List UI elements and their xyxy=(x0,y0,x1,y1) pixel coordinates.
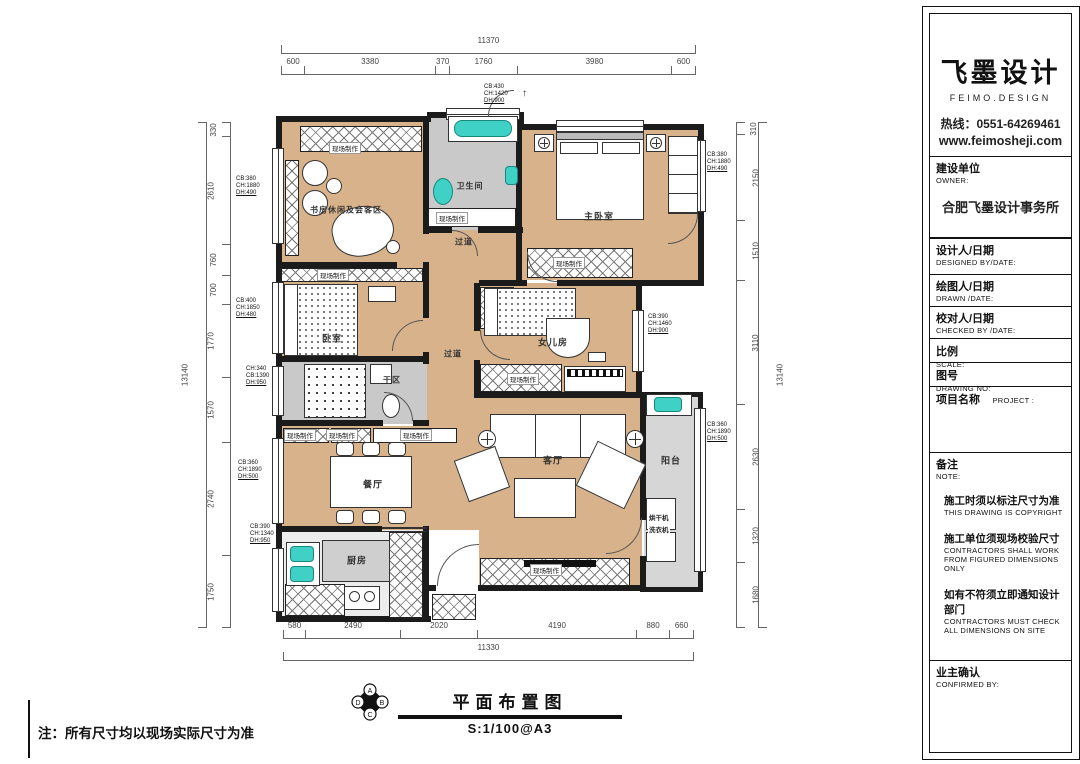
cabinet-label: 现场制作 xyxy=(507,373,539,385)
svg-text:A: A xyxy=(368,688,373,695)
project-label-cn: 项目名称 xyxy=(936,394,980,406)
window-drybath xyxy=(272,366,284,416)
brand-hotline: 热线：0551-64269461 xyxy=(936,115,1065,132)
window-study xyxy=(272,148,284,244)
cabinet-label: 现场制作 xyxy=(400,429,432,441)
scale-section: 比例 SCALE: xyxy=(930,339,1071,363)
window-tag: CB:360CH:1890DH:500 xyxy=(707,422,731,443)
note1-en: THIS DRAWING IS COPYRIGHT xyxy=(944,508,1065,517)
dining-chair xyxy=(336,442,354,456)
cabinet-label: 现场制作 xyxy=(329,142,361,154)
wall-master-left xyxy=(516,124,522,284)
label-master: 主卧室 xyxy=(584,210,614,223)
window-tag: CB:390CH:1460DH:900 xyxy=(648,314,672,335)
brand-website: www.feimosheji.com xyxy=(936,134,1065,148)
dining-chair xyxy=(388,442,406,456)
cabinet-label: 现场制作 xyxy=(326,429,358,441)
window-tag: CB:380CH:1880DH:490 xyxy=(707,152,731,173)
study-chair xyxy=(302,160,328,186)
brand-sub: FEIMO.DESIGN xyxy=(936,93,1065,103)
owner-value: 合肥飞墨设计事务所 xyxy=(936,197,1065,216)
window-balcony xyxy=(694,408,706,572)
designed-label-cn: 设计人/日期 xyxy=(936,242,1065,258)
label-bedroom: 卧室 xyxy=(322,332,342,345)
dim-top-overall: 11370 xyxy=(281,45,696,54)
no-label-cn: 图号 xyxy=(936,370,958,382)
dining-chair xyxy=(336,510,354,524)
sheet-note: 注：所有尺寸均以现场实际尺寸为准 xyxy=(38,722,254,742)
wall-girl-bottom xyxy=(474,392,642,398)
master-closet xyxy=(668,136,698,214)
label-living: 客厅 xyxy=(543,454,563,467)
cabinet-study-left xyxy=(285,160,299,256)
dryer-label: 烘干机 xyxy=(648,512,670,522)
checked-label-en: CHECKED BY /DATE: xyxy=(936,326,1065,335)
window-tag: CB:400CH:1850DH:480 xyxy=(236,298,260,319)
bathtub-basin xyxy=(454,120,512,137)
master-pillow xyxy=(560,142,598,154)
note3-cn: 如有不符须立即通知设计部门 xyxy=(944,587,1065,617)
designed-section: 设计人/日期 DESIGNED BY/DATE: xyxy=(930,239,1071,275)
kitchen-sink xyxy=(290,566,314,582)
cabinet-label: 现场制作 xyxy=(553,257,585,269)
dim-right-overall: 13140 xyxy=(758,122,767,628)
bedroom-pillow xyxy=(284,284,298,356)
label-bath: 卫生间 xyxy=(457,181,484,192)
window-kitchen xyxy=(272,548,284,612)
brand-name: 飞墨设计 xyxy=(936,51,1065,90)
wall-balcony-bottom xyxy=(644,587,703,592)
owner-label-en: OWNER: xyxy=(936,176,1065,185)
wall-girl-right-a xyxy=(636,286,642,310)
balcony-sink xyxy=(654,397,682,412)
note3-en: CONTRACTORS MUST CHECK ALL DIMENSIONS ON… xyxy=(944,617,1065,635)
checked-label-cn: 校对人/日期 xyxy=(936,310,1065,326)
label-kitchen: 厨房 xyxy=(347,554,367,567)
drawn-label-cn: 绘图人/日期 xyxy=(936,278,1065,294)
title-underline xyxy=(398,715,622,719)
piano-stool xyxy=(588,352,606,362)
designed-label-en: DESIGNED BY/DATE: xyxy=(936,258,1065,267)
svg-text:D: D xyxy=(355,700,360,707)
study-table xyxy=(326,178,342,194)
kitchen-slider-line xyxy=(382,527,427,529)
wall-kitchen-right xyxy=(423,526,429,622)
drawing-title: 平面布置图 xyxy=(398,688,622,713)
cabinet-bedroom-top xyxy=(281,268,423,282)
dim-left-segments: 330 2610 760 700 1770 1570 2740 1750 xyxy=(222,122,231,628)
confirm-label-cn: 业主确认 xyxy=(936,664,1065,680)
drawing-title-block: 平面布置图 S:1/100@A3 xyxy=(398,688,622,736)
piano-keys xyxy=(567,369,623,377)
master-lamp xyxy=(650,137,662,149)
svg-text:B: B xyxy=(380,700,385,707)
cabinet-label: 现场制作 xyxy=(284,429,316,441)
label-drybath: 干区 xyxy=(383,375,401,386)
dim-top-segments: 600 3380 370 1760 3980 600 xyxy=(281,66,696,75)
note-label-en: NOTE: xyxy=(936,472,1065,481)
wall-bedroom-bottom xyxy=(276,356,429,362)
entry-door xyxy=(437,544,479,586)
window-girl xyxy=(632,310,644,372)
wall-kitchen-top xyxy=(276,526,382,532)
brand-section: 飞墨设计 FEIMO.DESIGN 热线：0551-64269461 www.f… xyxy=(930,14,1071,157)
bath-sink xyxy=(505,166,518,185)
wall-bedroom-right-a xyxy=(423,262,429,318)
drawn-section: 绘图人/日期 DRAWN /DATE: xyxy=(930,275,1071,307)
dining-chair xyxy=(362,442,380,456)
window-master xyxy=(556,120,644,132)
owner-section: 建设单位 OWNER: 合肥飞墨设计事务所 xyxy=(930,157,1071,239)
dim-bottom-segments: 580 2490 2020 4190 880 660 xyxy=(283,630,694,639)
study-side-table xyxy=(386,240,400,254)
sheet-border-line xyxy=(28,700,30,758)
checked-section: 校对人/日期 CHECKED BY /DATE: xyxy=(930,307,1071,339)
window-tag: CB:360CH:1890DH:500 xyxy=(238,460,262,481)
note-label-cn: 备注 xyxy=(936,456,1065,472)
girl-pillow xyxy=(484,288,498,336)
drawn-label-en: DRAWN /DATE: xyxy=(936,294,1065,303)
svg-text:C: C xyxy=(367,712,372,719)
master-pillow xyxy=(602,142,640,154)
kitchen-sink xyxy=(290,546,314,562)
window-tag: CH:340CB:1390DH:950 xyxy=(246,366,269,387)
label-balcony: 阳台 xyxy=(661,454,681,467)
wall-drybath-bottom-a xyxy=(276,420,383,426)
compass-logo: A B C D xyxy=(350,682,390,722)
wall-top-study xyxy=(276,116,431,122)
note2-cn: 施工单位须现场校验尺寸 xyxy=(944,531,1065,546)
label-girl: 女儿房 xyxy=(538,336,568,349)
scale-label-cn: 比例 xyxy=(936,346,958,358)
label-dining: 餐厅 xyxy=(363,478,383,491)
washer-box xyxy=(646,532,676,562)
living-lamp xyxy=(626,430,644,448)
master-headboard xyxy=(556,132,644,140)
window-tag: CB:390CH:1340DH:950 xyxy=(250,524,274,545)
bedroom-desk xyxy=(368,286,396,302)
coffee-table xyxy=(514,478,576,518)
note2-en: CONTRACTORS SHALL WORK FROM FIGURED DIME… xyxy=(944,546,1065,573)
window-tag: CB:430CH:1420DH:900 xyxy=(484,84,508,105)
project-section: 项目名称 PROJECT : xyxy=(930,387,1071,453)
window-bedroom xyxy=(272,282,284,354)
burner xyxy=(364,591,375,602)
drawing-scale: S:1/100@A3 xyxy=(398,721,622,736)
dim-bottom-overall: 11330 xyxy=(283,652,694,661)
wall-bath-bottom-a xyxy=(423,227,452,233)
cabinet-study-top xyxy=(300,126,422,152)
window-tag: CB:380CH:1880DH:490 xyxy=(236,176,260,197)
cabinet-label: 现场制作 xyxy=(530,564,562,576)
project-label-en: PROJECT : xyxy=(992,396,1034,405)
shower xyxy=(304,364,366,418)
label-corridor-1: 过道 xyxy=(455,237,473,248)
confirm-section: 业主确认 CONFIRMED BY: xyxy=(930,661,1071,752)
label-corridor-2: 过道 xyxy=(444,349,462,360)
note1-cn: 施工时须以标注尺寸为准 xyxy=(944,493,1065,508)
title-block-inner: 飞墨设计 FEIMO.DESIGN 热线：0551-64269461 www.f… xyxy=(929,13,1072,753)
toilet xyxy=(433,178,453,205)
cabinet-label: 现场制作 xyxy=(436,212,468,224)
washer-label: 洗衣机 xyxy=(648,524,670,534)
cabinet-label: 现场制作 xyxy=(317,269,349,281)
cabinet-kitchen-right xyxy=(389,532,423,618)
master-lamp xyxy=(538,137,550,149)
dim-right-segments: 310 2150 1510 3110 2630 1320 1680 xyxy=(736,122,745,628)
title-block: 飞墨设计 FEIMO.DESIGN 热线：0551-64269461 www.f… xyxy=(922,6,1080,760)
notes-section: 备注 NOTE: 施工时须以标注尺寸为准 THIS DRAWING IS COP… xyxy=(930,453,1071,661)
dining-chair xyxy=(388,510,406,524)
label-study: 书房休闲及会客区 xyxy=(310,205,382,216)
confirm-label-en: CONFIRMED BY: xyxy=(936,680,1065,689)
drawing-no-section: 图号 DRAWING NO: xyxy=(930,363,1071,387)
cabinet-kitchen-bottom xyxy=(285,584,345,616)
cabinet-entry-shoe xyxy=(432,594,476,620)
owner-label-cn: 建设单位 xyxy=(936,160,1065,176)
wall-drybath-bottom-b xyxy=(413,420,429,426)
wall-master-bottom-b xyxy=(557,280,704,286)
dining-chair xyxy=(362,510,380,524)
up-arrow-icon: ↑ xyxy=(522,88,527,99)
window-dining xyxy=(272,438,284,524)
burner xyxy=(349,591,360,602)
